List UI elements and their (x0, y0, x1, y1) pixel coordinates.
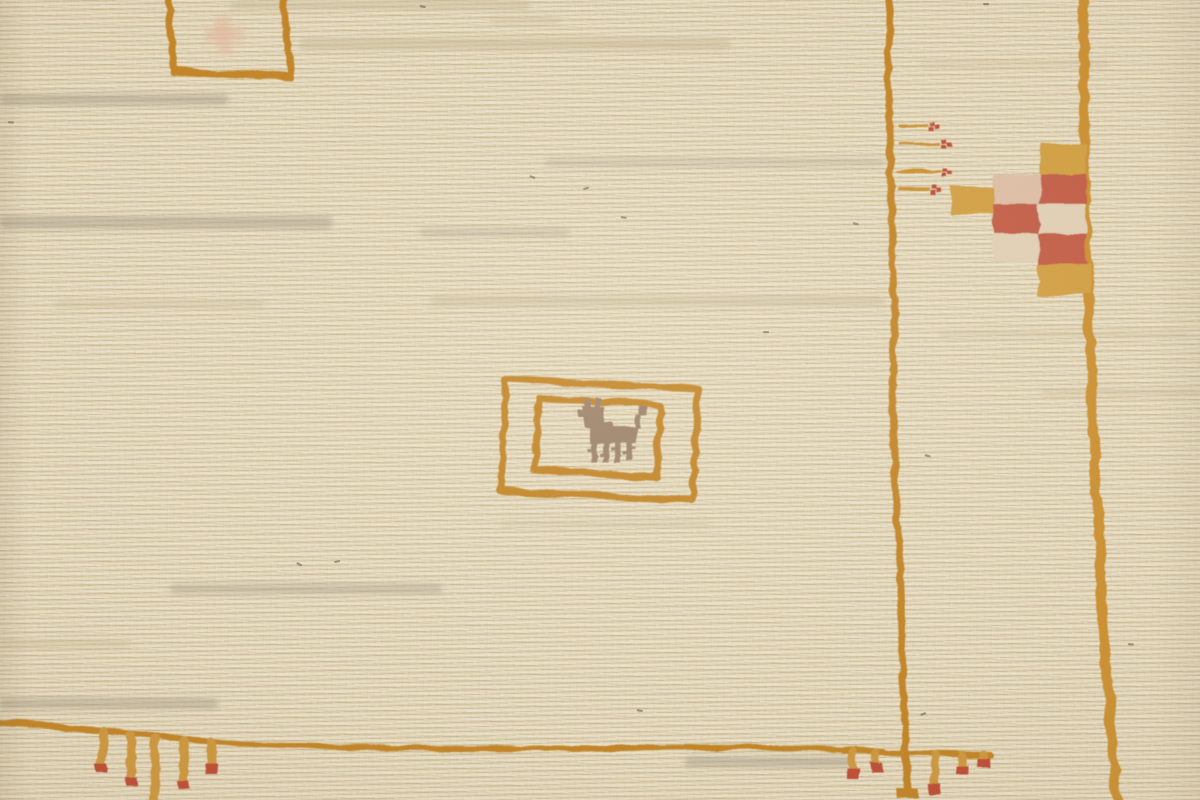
wool-grain-overlay (0, 0, 1200, 800)
rug-motif-layer (0, 0, 1200, 800)
rug-photo (0, 0, 1200, 800)
